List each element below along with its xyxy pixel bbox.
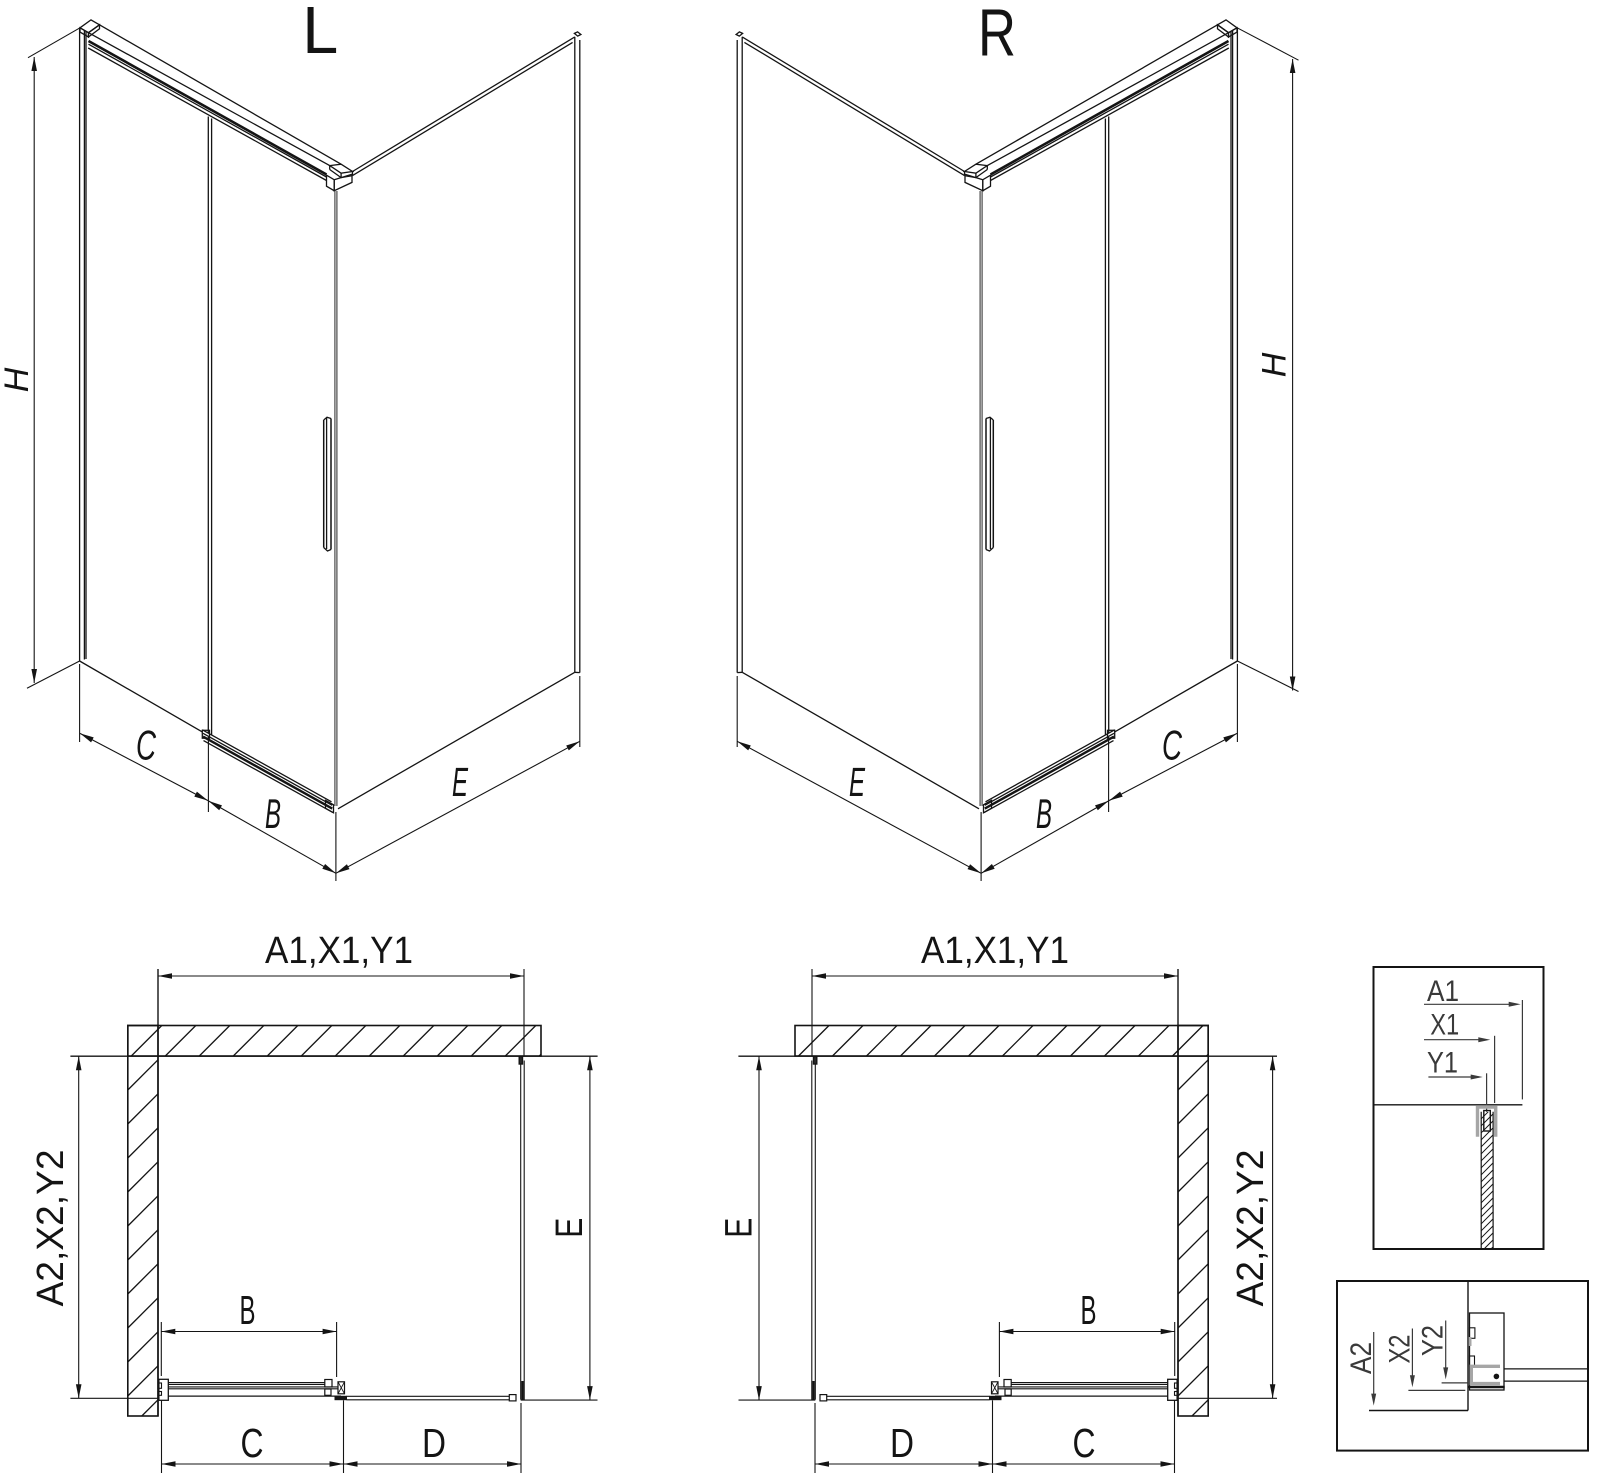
svg-text:X2: X2 — [1383, 1335, 1416, 1364]
svg-text:Y2: Y2 — [1417, 1325, 1450, 1356]
svg-text:B: B — [1036, 790, 1052, 837]
svg-text:A1,X1,Y1: A1,X1,Y1 — [921, 930, 1069, 972]
svg-text:B: B — [1081, 1287, 1097, 1333]
svg-text:H: H — [1255, 352, 1293, 377]
svg-text:C: C — [241, 1420, 264, 1466]
svg-text:L: L — [302, 0, 338, 68]
svg-text:D: D — [890, 1420, 914, 1466]
svg-text:B: B — [240, 1287, 256, 1333]
svg-text:C: C — [1073, 1420, 1096, 1466]
svg-text:C: C — [136, 722, 156, 769]
svg-text:A1: A1 — [1427, 975, 1459, 1008]
svg-text:E: E — [452, 759, 468, 805]
svg-text:A2,X2,Y2: A2,X2,Y2 — [1230, 1150, 1272, 1307]
svg-text:R: R — [978, 0, 1016, 71]
svg-text:Y1: Y1 — [1427, 1047, 1458, 1080]
svg-text:X1: X1 — [1430, 1009, 1459, 1042]
svg-text:E: E — [849, 759, 865, 805]
svg-text:A1,X1,Y1: A1,X1,Y1 — [265, 930, 413, 972]
svg-text:E: E — [719, 1218, 761, 1238]
svg-text:D: D — [422, 1420, 446, 1466]
svg-text:A2,X2,Y2: A2,X2,Y2 — [30, 1150, 72, 1307]
svg-text:C: C — [1162, 722, 1182, 769]
svg-text:B: B — [265, 790, 281, 837]
svg-text:A2: A2 — [1345, 1342, 1378, 1374]
svg-text:H: H — [0, 367, 36, 392]
svg-text:E: E — [549, 1218, 591, 1238]
